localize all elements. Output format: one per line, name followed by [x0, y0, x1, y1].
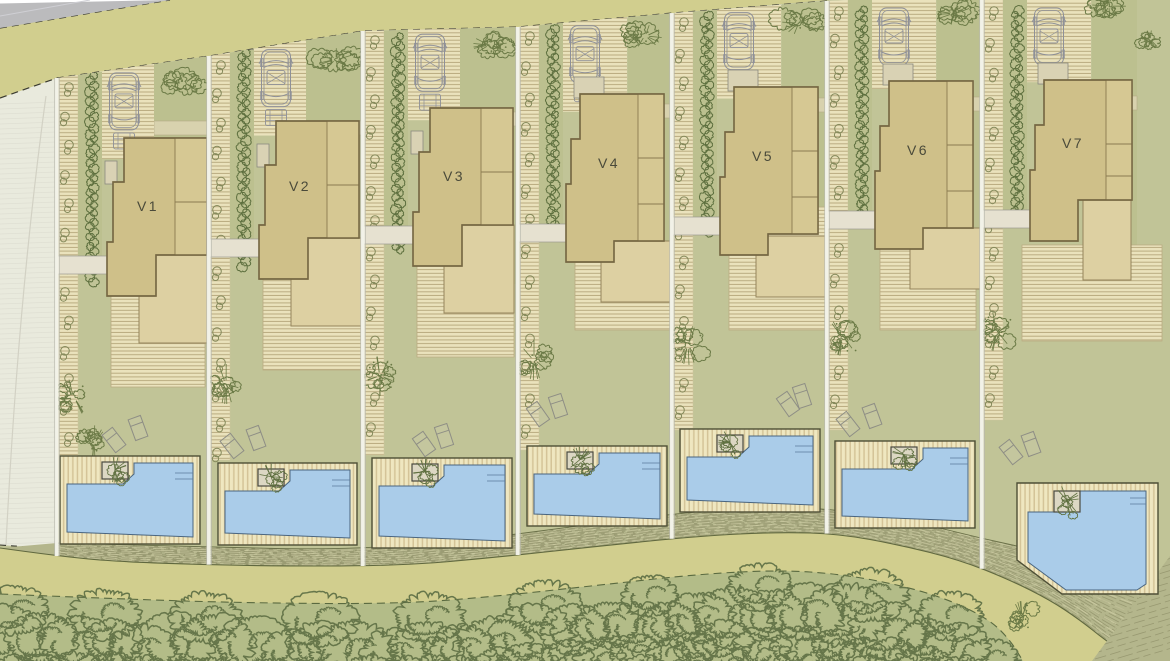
svg-text:V5: V5: [752, 148, 774, 164]
svg-text:V7: V7: [1062, 135, 1084, 151]
svg-text:V6: V6: [907, 142, 929, 158]
svg-text:V2: V2: [289, 178, 311, 194]
svg-text:V1: V1: [137, 198, 159, 214]
svg-text:V3: V3: [443, 168, 465, 184]
svg-text:V4: V4: [598, 155, 620, 171]
